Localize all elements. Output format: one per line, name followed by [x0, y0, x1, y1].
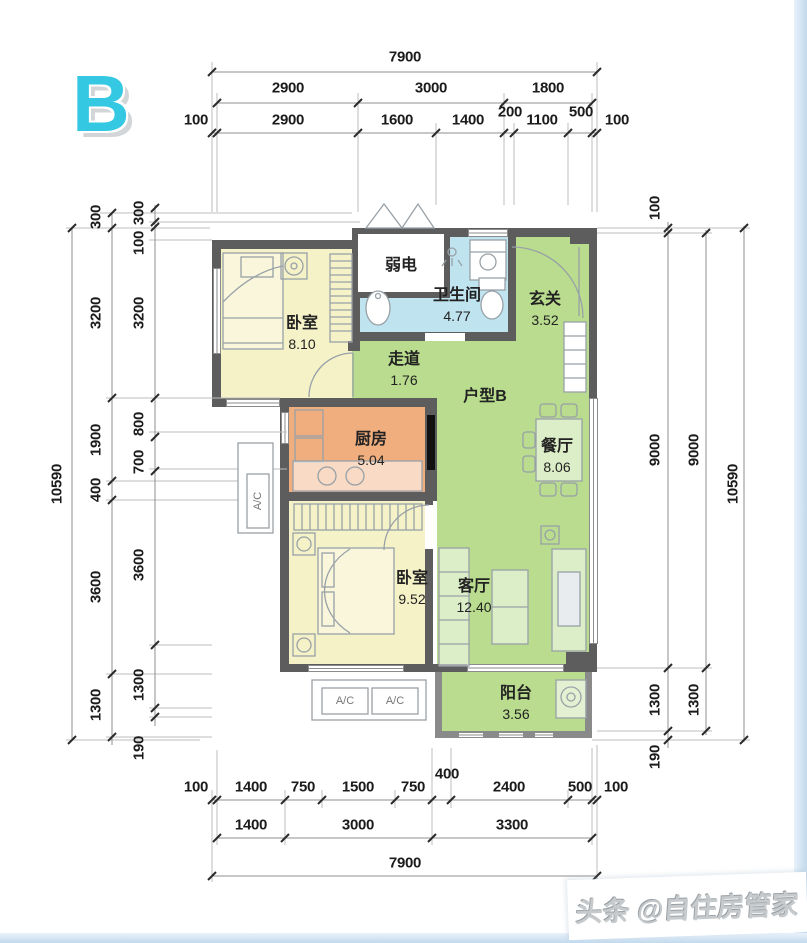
- room-area: 8.06: [541, 457, 573, 477]
- page-border-right: [794, 0, 807, 943]
- label-balcony: 阳台 3.56: [500, 684, 532, 724]
- window: [468, 229, 508, 237]
- balcony-wall: [585, 672, 592, 738]
- label-kitchen: 厨房 5.04: [355, 430, 387, 470]
- room-area: 8.10: [286, 334, 318, 354]
- label-living: 客厅 12.40: [456, 577, 491, 617]
- dim-label: 500: [569, 104, 593, 121]
- dim-label: 1800: [532, 80, 564, 97]
- balcony-sliding-door: [467, 664, 564, 672]
- ac-label: A/C: [386, 695, 404, 707]
- dim-label: 1600: [381, 112, 413, 129]
- dim-label: 200: [498, 104, 522, 121]
- dim-label: 400: [88, 478, 105, 502]
- dim-label: 400: [435, 766, 459, 783]
- shaft-symbol: [402, 204, 434, 228]
- room-area: 3.52: [529, 310, 561, 330]
- dim-label: 7900: [389, 49, 421, 66]
- dim-label: 1900: [88, 424, 105, 456]
- dim-label: 100: [647, 196, 664, 220]
- dim-label: 7900: [389, 855, 421, 872]
- dim-label: 750: [401, 779, 425, 796]
- dim-label: 1300: [88, 689, 105, 721]
- room-name: 卧室: [286, 314, 318, 334]
- wall: [212, 240, 358, 249]
- wall: [589, 228, 597, 406]
- room-name: 客厅: [456, 577, 491, 597]
- window: [226, 399, 280, 407]
- wall: [508, 237, 516, 341]
- dim-label: 1400: [235, 817, 267, 834]
- floorplan-page: { "badge": "B", "unit_label": "户型B", "sh…: [0, 0, 807, 943]
- dim-label: 100: [604, 779, 628, 796]
- label-corridor: 走道 1.76: [388, 350, 420, 390]
- dim-label: 1100: [526, 112, 557, 129]
- dim-label: 700: [131, 450, 148, 474]
- dim-label: 2400: [493, 779, 525, 796]
- dim-label: 3000: [415, 80, 447, 97]
- balcony-window: [458, 732, 484, 738]
- label-entry: 玄关 3.52: [529, 290, 561, 330]
- dim-label: 100: [184, 779, 208, 796]
- label-bathroom: 卫生间 4.77: [433, 286, 481, 326]
- wall: [348, 341, 360, 351]
- dim-label: 10590: [49, 464, 66, 504]
- shaft-label: 弱电: [385, 251, 417, 275]
- dim-label: 300: [88, 205, 105, 229]
- door-opening: [425, 505, 433, 549]
- room-area: 5.04: [355, 450, 387, 470]
- dim-label: 3200: [131, 297, 148, 329]
- dim-label: 1400: [452, 112, 484, 129]
- room-area: 9.52: [396, 589, 428, 609]
- dim-label: 190: [131, 736, 148, 760]
- dim-label: 190: [647, 745, 664, 769]
- room-name: 餐厅: [541, 437, 573, 457]
- wall: [280, 407, 289, 672]
- watermark-handle: @自住房管家: [636, 890, 799, 926]
- dim-label: 800: [131, 412, 148, 436]
- label-bedroom1: 卧室 8.10: [286, 314, 318, 354]
- dim-label: 3600: [131, 549, 148, 581]
- dim-label: 1300: [686, 684, 703, 716]
- ac-label: A/C: [336, 695, 354, 707]
- dim-label: 1300: [131, 669, 148, 701]
- kitchen-door-pocket: [427, 415, 435, 470]
- room-name: 卫生间: [433, 286, 481, 306]
- dim-label: 1300: [647, 684, 664, 716]
- balcony-window: [534, 732, 554, 738]
- dim-label: 9000: [686, 434, 703, 466]
- room-area: 12.40: [456, 597, 491, 617]
- dim-label: 100: [131, 231, 148, 255]
- ac-label: A/C: [252, 492, 264, 510]
- plan-type-badge: B: [72, 58, 130, 150]
- room-name: 卧室: [396, 569, 428, 589]
- shaft-symbol: [366, 204, 402, 228]
- ac-platform: [312, 680, 426, 720]
- dim-label: 750: [291, 779, 315, 796]
- dim-label: 9000: [647, 434, 664, 466]
- balcony-window: [498, 732, 524, 738]
- door-opening: [425, 333, 465, 341]
- window: [213, 268, 221, 354]
- watermark-prefix: 头条: [575, 895, 631, 927]
- dim-label: 3000: [342, 817, 374, 834]
- watermark-box: 头条 @自住房管家: [567, 872, 807, 940]
- wall: [562, 664, 597, 672]
- room-name: 阳台: [500, 684, 532, 704]
- label-bedroom2: 卧室 9.52: [396, 569, 428, 609]
- wall: [280, 492, 437, 501]
- room-area: 4.77: [433, 306, 481, 326]
- unit-type-label: 户型B: [463, 382, 507, 406]
- dim-label: 2900: [272, 112, 304, 129]
- room-name: 玄关: [529, 290, 561, 310]
- room-area: 3.56: [500, 704, 532, 724]
- dim-label: 100: [184, 112, 208, 129]
- dim-label: 3200: [88, 297, 105, 329]
- window-wall: [589, 398, 598, 644]
- window: [308, 665, 404, 672]
- room-name: 厨房: [355, 430, 387, 450]
- label-dining: 餐厅 8.06: [541, 437, 573, 477]
- room-name: 走道: [388, 350, 420, 370]
- window: [281, 412, 289, 444]
- dim-label: 1500: [342, 779, 374, 796]
- dim-label: 100: [605, 112, 629, 129]
- wall: [433, 664, 467, 672]
- dim-label: 3300: [496, 817, 528, 834]
- watermark-text: 头条 @自住房管家: [575, 883, 800, 930]
- dim-label: 3600: [88, 571, 105, 603]
- room-area: 1.76: [388, 370, 420, 390]
- dim-label: 300: [131, 201, 148, 225]
- dim-label: 1400: [235, 779, 267, 796]
- ac-platform: [238, 443, 273, 533]
- dim-label: 500: [568, 779, 592, 796]
- dim-label: 10590: [725, 464, 742, 504]
- dim-label: 2900: [272, 80, 304, 97]
- balcony-wall: [435, 672, 442, 738]
